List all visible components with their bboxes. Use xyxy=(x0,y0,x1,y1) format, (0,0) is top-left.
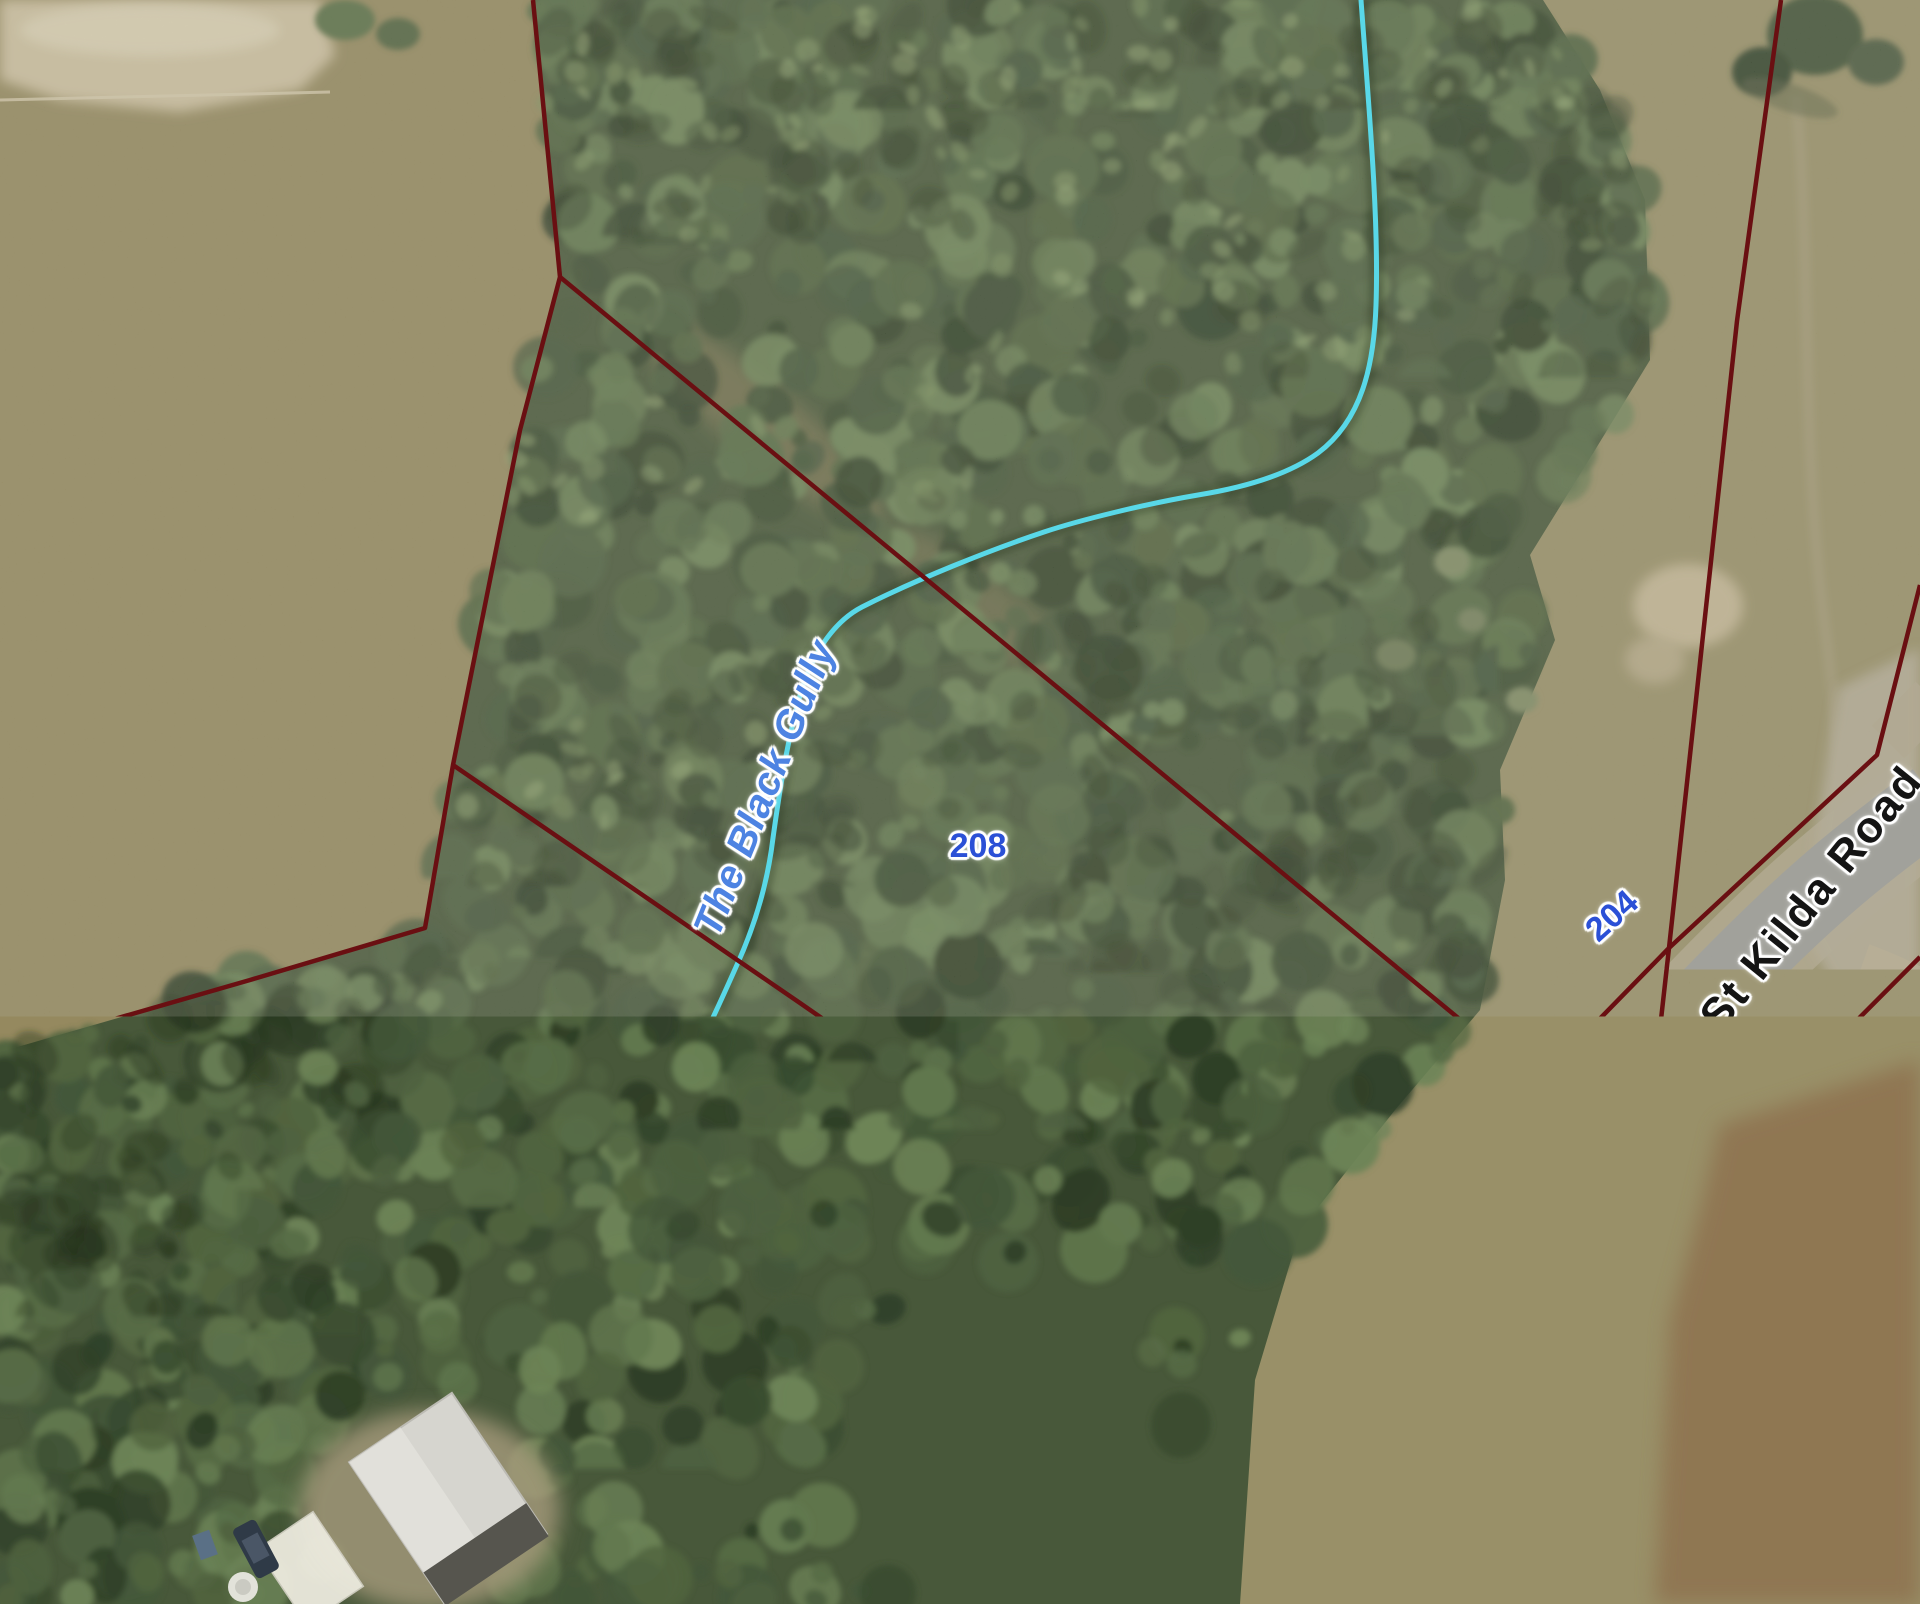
parcel-label-208: 208 xyxy=(950,829,1007,863)
parcel-label-212: 212 xyxy=(724,1176,781,1210)
parcel-label-216: 216 xyxy=(199,1379,256,1413)
aerial-imagery-layer xyxy=(0,0,1920,1604)
map-canvas[interactable]: 208 204 212 216 The Black Gully St Kilda… xyxy=(0,0,1920,1604)
